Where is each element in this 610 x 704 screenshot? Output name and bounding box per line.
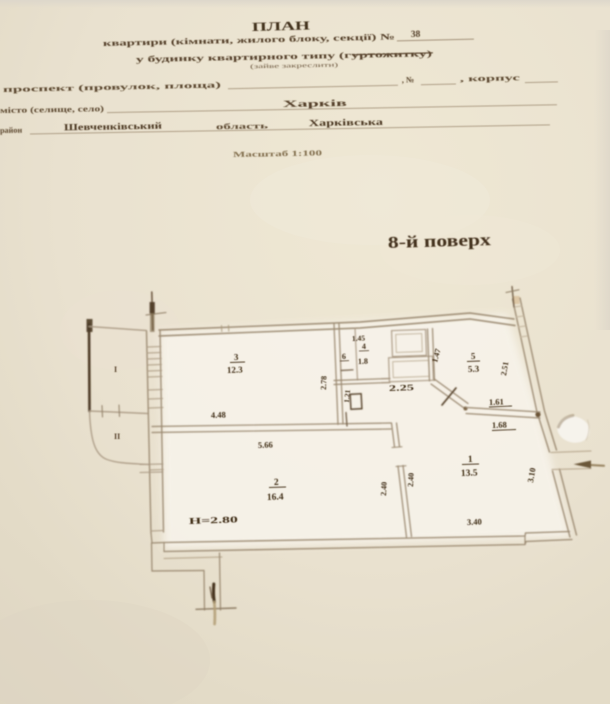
svg-text:5.3: 5.3: [468, 364, 480, 374]
svg-text:6: 6: [342, 352, 346, 361]
svg-text:5: 5: [471, 351, 476, 361]
svg-text:12.3: 12.3: [227, 364, 244, 375]
svg-text:13.5: 13.5: [461, 468, 478, 479]
svg-text:1.68: 1.68: [492, 419, 507, 430]
svg-text:Шевченківський: Шевченківський: [64, 121, 163, 134]
svg-text:1.8: 1.8: [358, 357, 368, 366]
svg-text:, корпус: , корпус: [460, 73, 521, 83]
svg-text:2: 2: [274, 478, 279, 488]
svg-text:область: область: [216, 121, 269, 131]
svg-text:Н=2.80: Н=2.80: [189, 514, 239, 526]
svg-text:1: 1: [468, 455, 473, 465]
svg-text:1.61: 1.61: [489, 396, 504, 407]
svg-text:Харків: Харків: [283, 98, 347, 110]
svg-text:2.25: 2.25: [389, 382, 414, 393]
svg-text:район: район: [0, 126, 22, 135]
svg-text:3: 3: [234, 352, 239, 362]
svg-text:2.40: 2.40: [406, 473, 416, 487]
svg-text:, №: , №: [402, 75, 415, 84]
svg-text:4: 4: [362, 342, 366, 351]
svg-text:1.21: 1.21: [342, 389, 352, 403]
svg-text:Масштаб 1:100: Масштаб 1:100: [233, 148, 322, 159]
svg-text:16.4: 16.4: [267, 492, 284, 503]
svg-text:4.48: 4.48: [211, 409, 226, 420]
svg-text:1.45: 1.45: [352, 334, 366, 343]
svg-text:II: II: [114, 432, 120, 441]
svg-text:3.40: 3.40: [467, 516, 482, 527]
svg-text:2.40: 2.40: [379, 482, 389, 496]
svg-text:Харківська: Харківська: [309, 117, 384, 129]
svg-text:місто (селище, село): місто (селище, село): [0, 104, 104, 115]
svg-text:I: I: [114, 365, 117, 374]
svg-text:5.66: 5.66: [258, 439, 273, 450]
svg-text:38: 38: [411, 30, 421, 40]
svg-text:2.78: 2.78: [319, 376, 328, 390]
svg-text:ПЛАН: ПЛАН: [252, 18, 311, 34]
svg-text:8-й поверх: 8-й поверх: [388, 230, 492, 252]
